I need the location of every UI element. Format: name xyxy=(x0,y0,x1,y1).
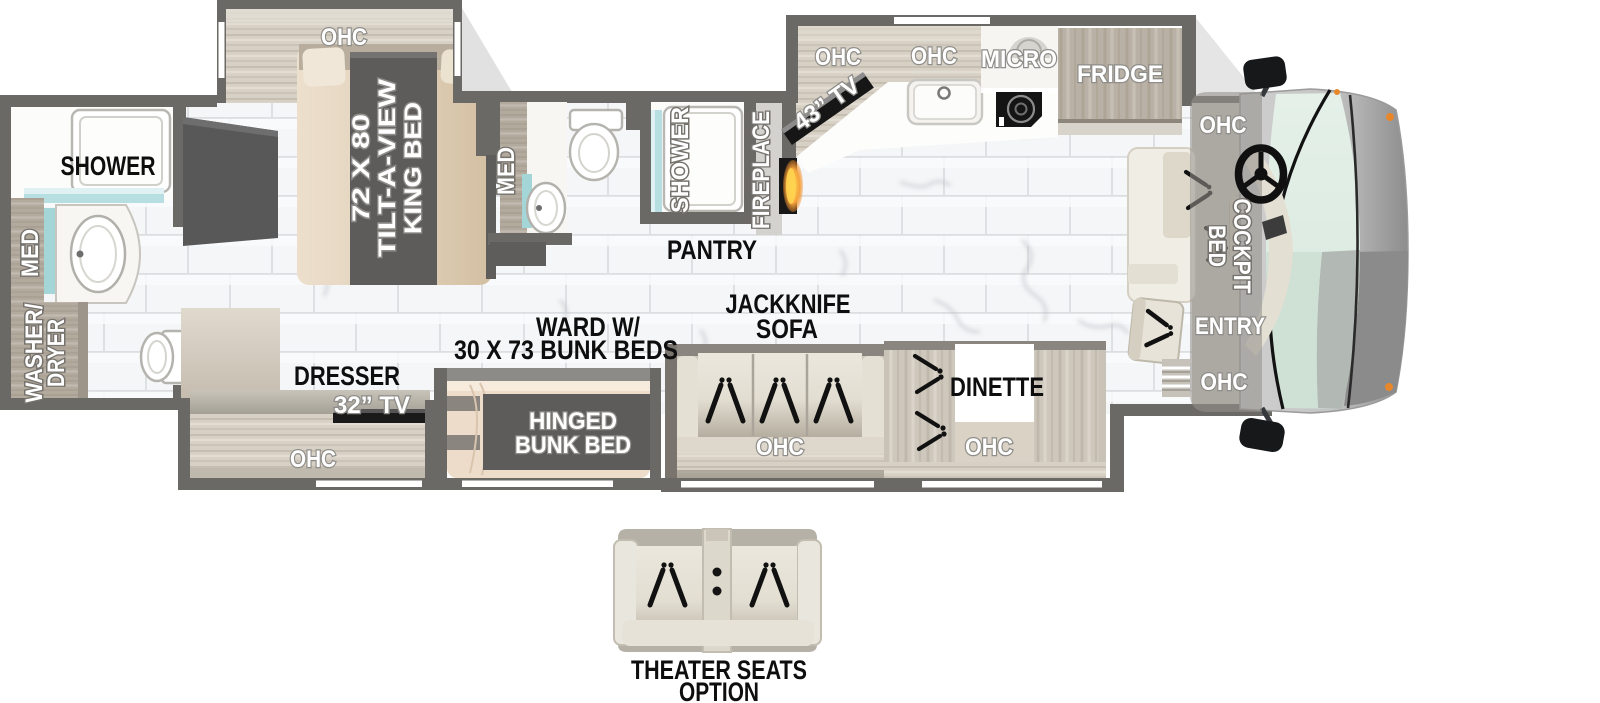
svg-text:OHC: OHC xyxy=(1201,369,1248,396)
svg-text:30 X 73 BUNK BEDS: 30 X 73 BUNK BEDS xyxy=(454,335,678,365)
svg-text:SHOWER: SHOWER xyxy=(667,107,694,213)
svg-text:OHC: OHC xyxy=(965,434,1013,461)
svg-text:DINETTE: DINETTE xyxy=(950,372,1044,402)
svg-text:COCKPIT: COCKPIT xyxy=(1228,199,1255,294)
svg-text:DRYER: DRYER xyxy=(43,319,70,387)
svg-text:BED: BED xyxy=(1203,225,1230,267)
svg-text:OHC: OHC xyxy=(815,44,861,71)
svg-text:OHC: OHC xyxy=(321,24,367,51)
svg-text:SHOWER: SHOWER xyxy=(61,151,156,181)
svg-text:SOFA: SOFA xyxy=(756,314,818,344)
svg-text:OHC: OHC xyxy=(911,43,957,70)
svg-text:ENTRY: ENTRY xyxy=(1195,313,1265,340)
svg-text:MED: MED xyxy=(493,147,520,195)
svg-text:FRIDGE: FRIDGE xyxy=(1077,61,1163,88)
svg-text:MED: MED xyxy=(17,229,44,277)
svg-text:OHC: OHC xyxy=(290,446,336,473)
svg-text:OPTION: OPTION xyxy=(679,677,759,703)
svg-text:32” TV: 32” TV xyxy=(334,392,410,419)
svg-text:HINGED: HINGED xyxy=(529,408,617,435)
svg-text:MICRO: MICRO xyxy=(981,46,1057,73)
svg-text:FIREPLACE: FIREPLACE xyxy=(748,111,775,229)
svg-text:OHC: OHC xyxy=(756,434,804,461)
svg-text:PANTRY: PANTRY xyxy=(667,235,757,265)
svg-text:TILT-A-VIEW: TILT-A-VIEW xyxy=(374,79,401,257)
svg-text:BUNK BED: BUNK BED xyxy=(515,432,631,459)
svg-text:DRESSER: DRESSER xyxy=(294,361,400,391)
svg-text:72 X 80: 72 X 80 xyxy=(348,114,375,222)
svg-text:KING BED: KING BED xyxy=(400,102,427,234)
svg-text:OHC: OHC xyxy=(1200,112,1247,139)
